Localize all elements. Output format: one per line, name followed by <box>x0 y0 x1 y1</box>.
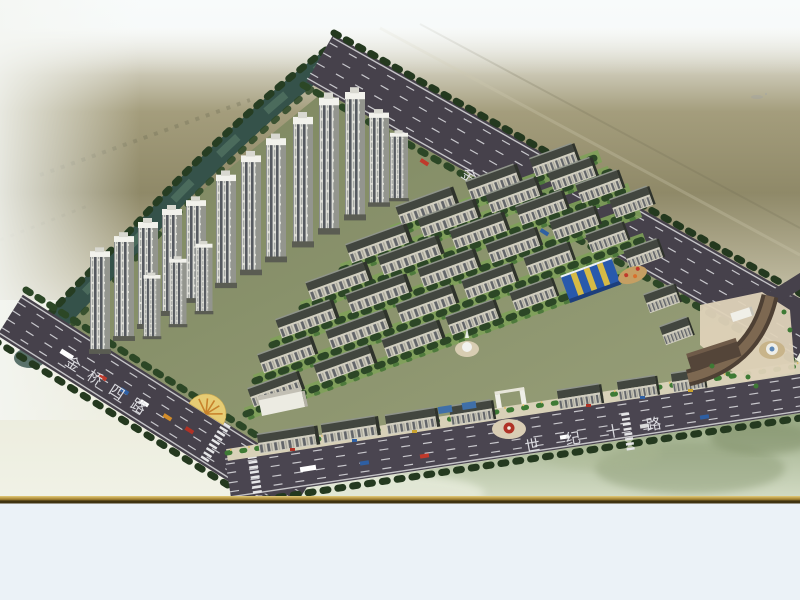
east-fountain <box>759 341 785 359</box>
mat-area <box>0 504 800 600</box>
corner-commercial-east <box>686 292 795 389</box>
gold-frame-edge <box>0 496 800 501</box>
rendering-photo: 金桥五路 金桥四路 <box>0 0 800 600</box>
frame-shadow-line <box>0 501 800 504</box>
masterplan-rendering: 金桥五路 金桥四路 <box>0 0 800 600</box>
